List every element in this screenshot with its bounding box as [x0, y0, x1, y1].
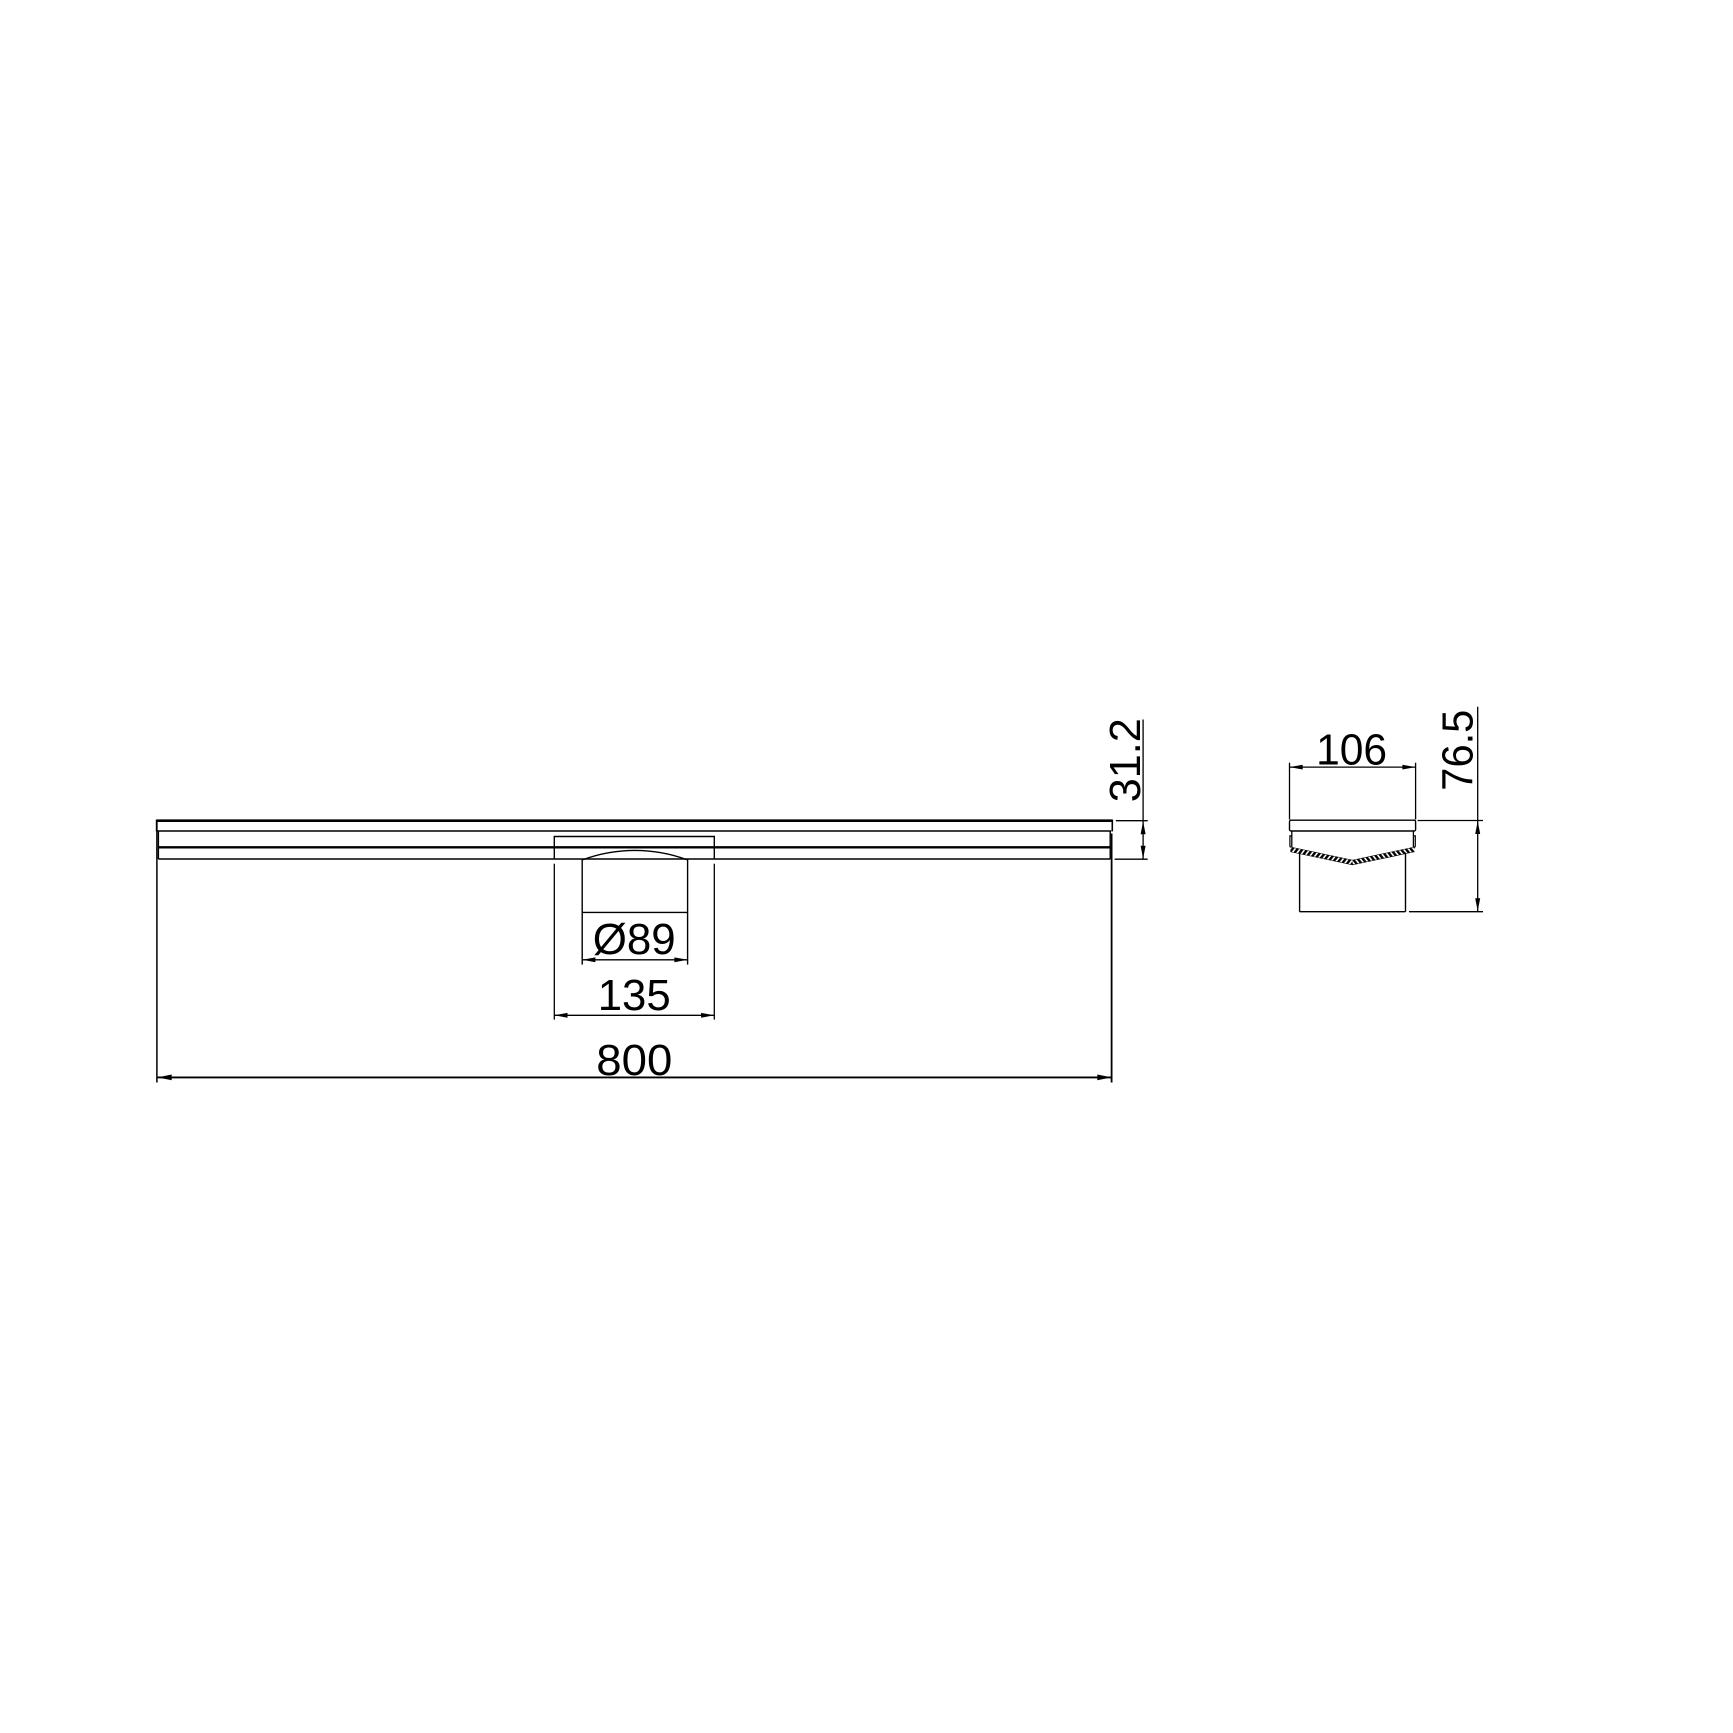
svg-text:135: 135 — [598, 971, 671, 1020]
svg-text:106: 106 — [1316, 725, 1387, 774]
svg-text:Ø89: Ø89 — [593, 915, 676, 964]
svg-text:800: 800 — [596, 1036, 672, 1085]
svg-text:31.2: 31.2 — [1101, 718, 1150, 802]
svg-text:76.5: 76.5 — [1434, 710, 1483, 791]
